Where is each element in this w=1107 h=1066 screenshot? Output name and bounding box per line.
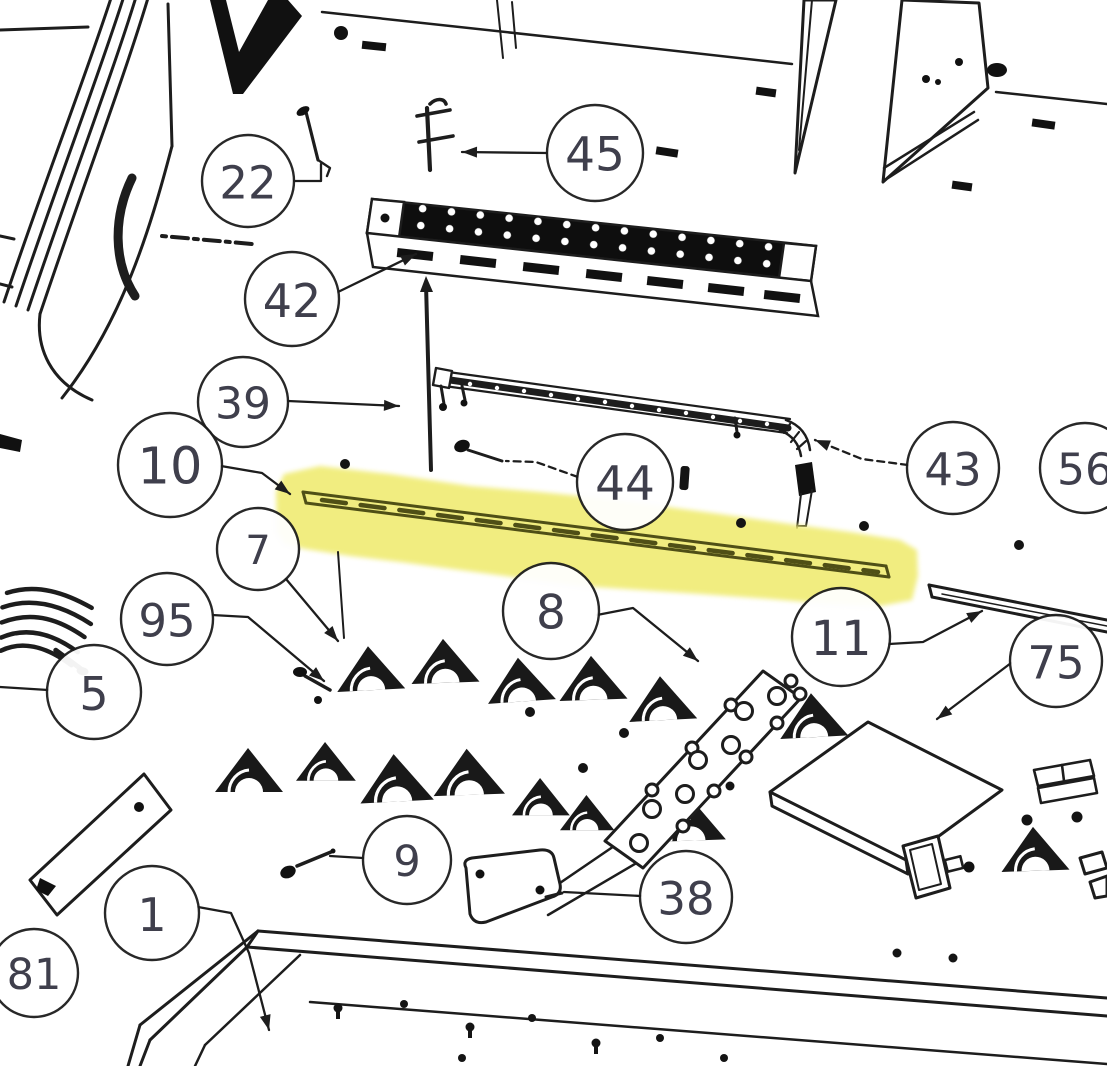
balloon-number-56: 56: [1057, 445, 1107, 496]
leader-line-9: [330, 856, 363, 858]
balloon-number-22: 22: [219, 157, 276, 210]
balloon-number-81: 81: [7, 950, 62, 1000]
balloon-number-8: 8: [536, 586, 566, 641]
balloon-number-75: 75: [1027, 637, 1084, 690]
balloon-number-43: 43: [924, 444, 981, 497]
igniter-rod-part-39: [420, 276, 433, 470]
balloon-number-38: 38: [657, 873, 714, 926]
leader-line-8: [597, 608, 698, 661]
screw-part-95: [293, 667, 330, 704]
balloon-number-42: 42: [263, 274, 322, 328]
balloon-number-5: 5: [79, 667, 108, 721]
balloon-number-10: 10: [138, 438, 203, 497]
balloon-number-9: 9: [393, 837, 420, 887]
callout-42: 42: [245, 252, 416, 346]
grease-tray-part-42: [367, 199, 818, 316]
flat-plate-part-75: [770, 722, 1002, 874]
balloon-number-44: 44: [595, 457, 655, 512]
callout-75: 75: [937, 615, 1102, 719]
balloon-number-95: 95: [138, 595, 195, 648]
callout-5: 5: [0, 645, 141, 739]
leader-line-38: [564, 892, 641, 896]
balloon-number-1: 1: [137, 888, 166, 942]
callout-81: 81: [0, 929, 78, 1017]
drop-line: [338, 552, 344, 638]
leader-arrowhead-45: [462, 147, 477, 158]
diagram-stage: 2245423910795544435681175938181: [0, 0, 1107, 1066]
hopper-outline: [0, 0, 172, 400]
callout-9: 9: [330, 816, 451, 904]
leader-arrowhead-11: [966, 611, 982, 623]
callout-22: 22: [202, 135, 321, 227]
leader-line-44: [506, 461, 578, 477]
parts-diagram: 2245423910795544435681175938181: [0, 0, 1107, 1066]
leader-arrowhead-39: [384, 400, 399, 411]
leader-line-39: [288, 401, 399, 406]
leader-line-5: [0, 687, 48, 690]
bracket-part-38: [465, 850, 562, 923]
leader-arrowhead-43: [815, 440, 831, 451]
callout-43: 43: [815, 422, 999, 514]
leader-line-22: [294, 164, 321, 181]
leader-arrowhead-75: [937, 706, 952, 719]
callout-56: 56: [1040, 423, 1107, 513]
balloon-number-45: 45: [565, 128, 625, 183]
callout-39: 39: [198, 357, 399, 447]
balloon-number-7: 7: [245, 528, 270, 574]
balloon-number-39: 39: [215, 379, 271, 430]
screw-part-9: [278, 849, 335, 881]
callout-45: 45: [462, 105, 643, 201]
rear-panels: [756, 0, 1056, 191]
leader-line-95: [212, 615, 324, 681]
leader-arrowhead-1: [260, 1014, 271, 1030]
balloon-number-11: 11: [810, 611, 871, 667]
firebox-tub-part-1: [128, 931, 1107, 1066]
